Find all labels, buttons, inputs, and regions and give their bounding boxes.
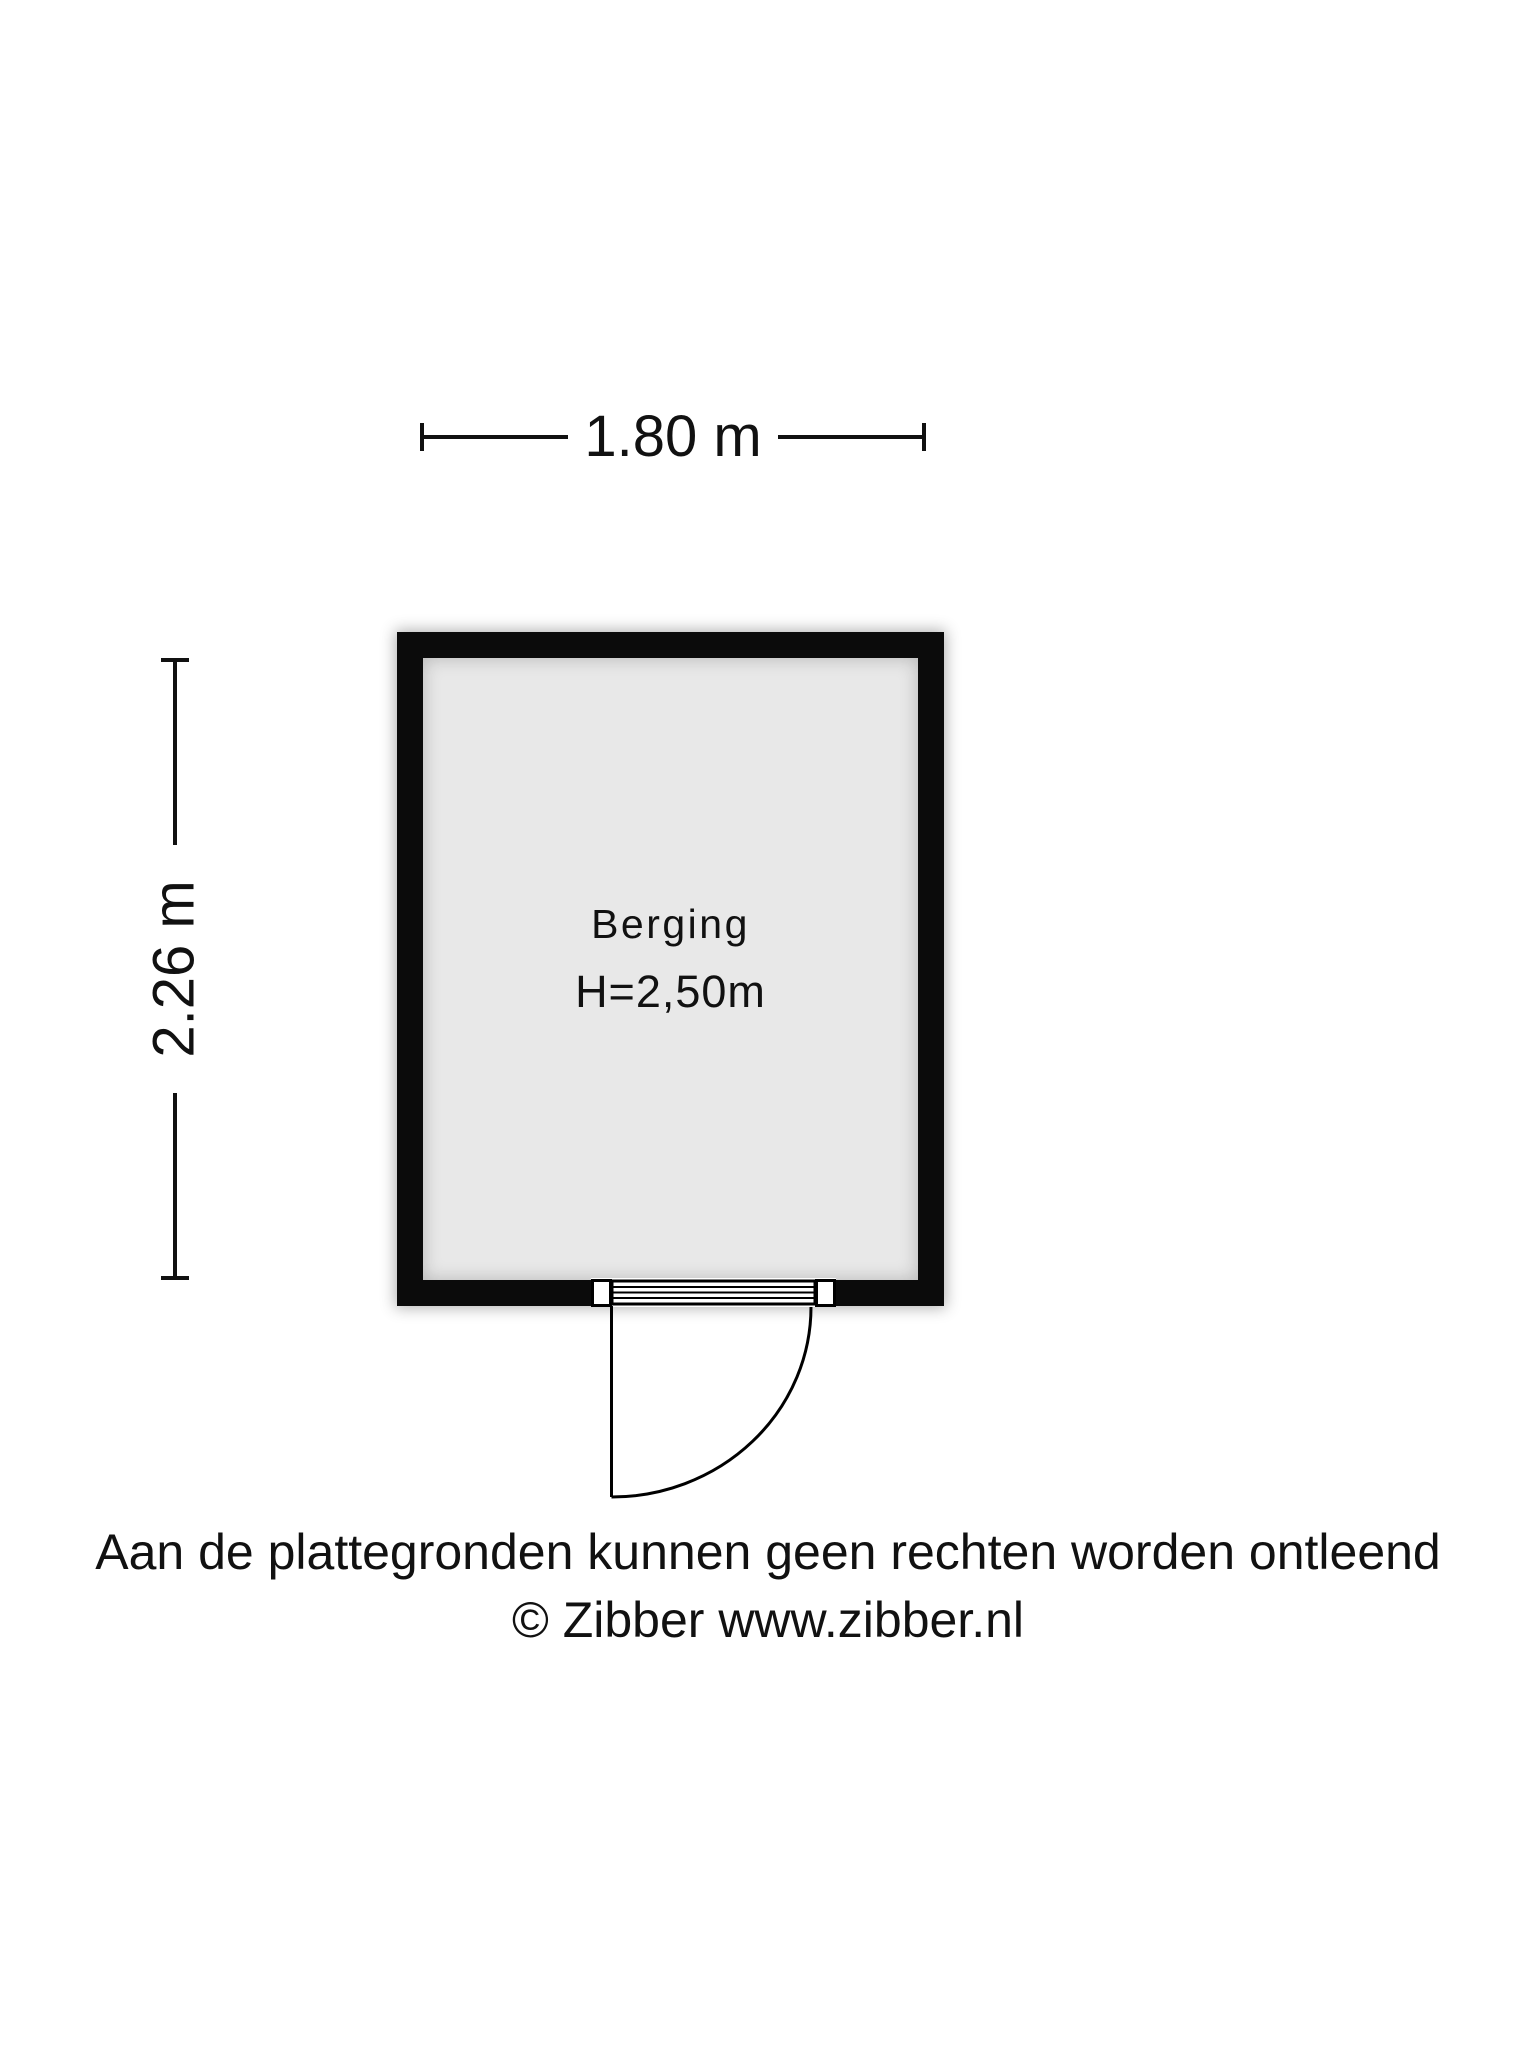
dimension-line-bottom-segment [173,1093,177,1276]
disclaimer-text: Aan de plattegronden kunnen geen rechten… [0,1524,1536,1580]
dimension-tick-right [922,423,926,451]
copyright-text: © Zibber www.zibber.nl [0,1592,1536,1648]
dimension-tick-bottom [161,1276,189,1280]
room-ceiling-height-label: H=2,50m [397,966,944,1018]
door [580,1270,860,1520]
width-dimension-label: 1.80 m [584,408,761,466]
height-dimension-label: 2.26 m [146,880,204,1057]
door-swing-arc [612,1307,812,1497]
door-jamb-right [817,1281,835,1306]
height-dimension-label-slot: 2.26 m [146,845,204,1093]
width-dimension: 1.80 m [420,408,926,466]
room-label-block: Berging H=2,50m [397,900,944,1018]
dimension-line-top-segment [173,662,177,845]
dimension-line-left-segment [424,435,568,439]
height-dimension: 2.26 m [146,658,204,1280]
door-jamb-left [593,1281,611,1306]
dimension-line-right-segment [778,435,922,439]
room-name-label: Berging [397,900,944,948]
